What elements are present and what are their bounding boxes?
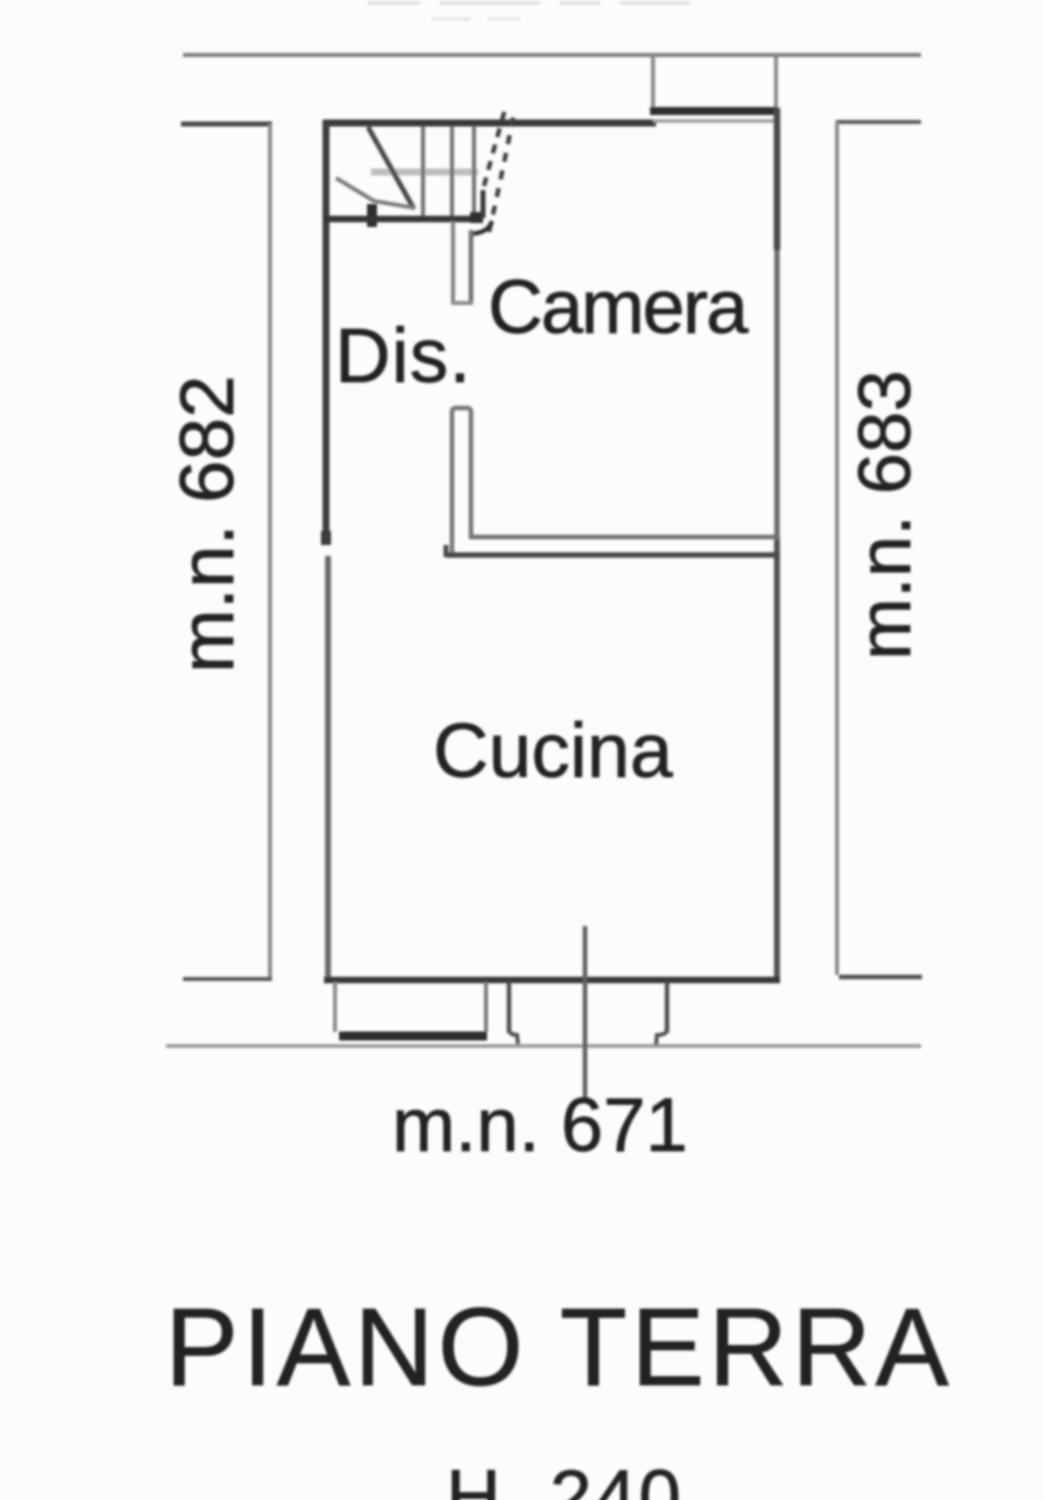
svg-text:m.n. 671: m.n. 671	[392, 1083, 688, 1168]
svg-text:PIANO TERRA: PIANO TERRA	[165, 1286, 953, 1409]
svg-text:Cucina: Cucina	[433, 708, 673, 794]
svg-text:Dis.: Dis.	[335, 313, 472, 399]
svg-text:m.n. 682: m.n. 682	[165, 375, 250, 673]
svg-text:Camera: Camera	[488, 265, 749, 350]
svg-text:m.n. 683: m.n. 683	[843, 370, 926, 660]
svg-text:H. 240: H. 240	[446, 1455, 683, 1500]
